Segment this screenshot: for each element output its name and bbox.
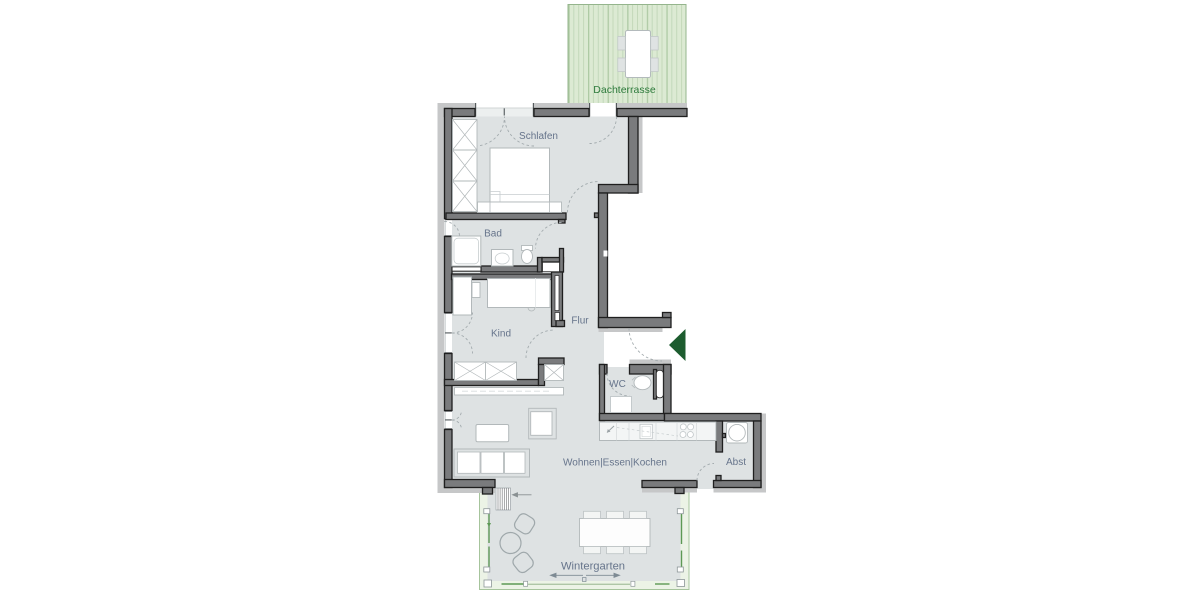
svg-text:Bad: Bad — [484, 229, 502, 240]
svg-text:Flur: Flur — [571, 316, 589, 327]
svg-text:Kind: Kind — [491, 329, 511, 340]
svg-text:Dachterrasse: Dachterrasse — [593, 84, 656, 96]
svg-text:Wintergarten: Wintergarten — [561, 561, 625, 573]
svg-text:Abst: Abst — [726, 457, 746, 468]
svg-text:WC: WC — [609, 379, 626, 390]
svg-text:Schlafen: Schlafen — [519, 131, 558, 142]
svg-text:Wohnen|Essen|Kochen: Wohnen|Essen|Kochen — [563, 458, 667, 469]
